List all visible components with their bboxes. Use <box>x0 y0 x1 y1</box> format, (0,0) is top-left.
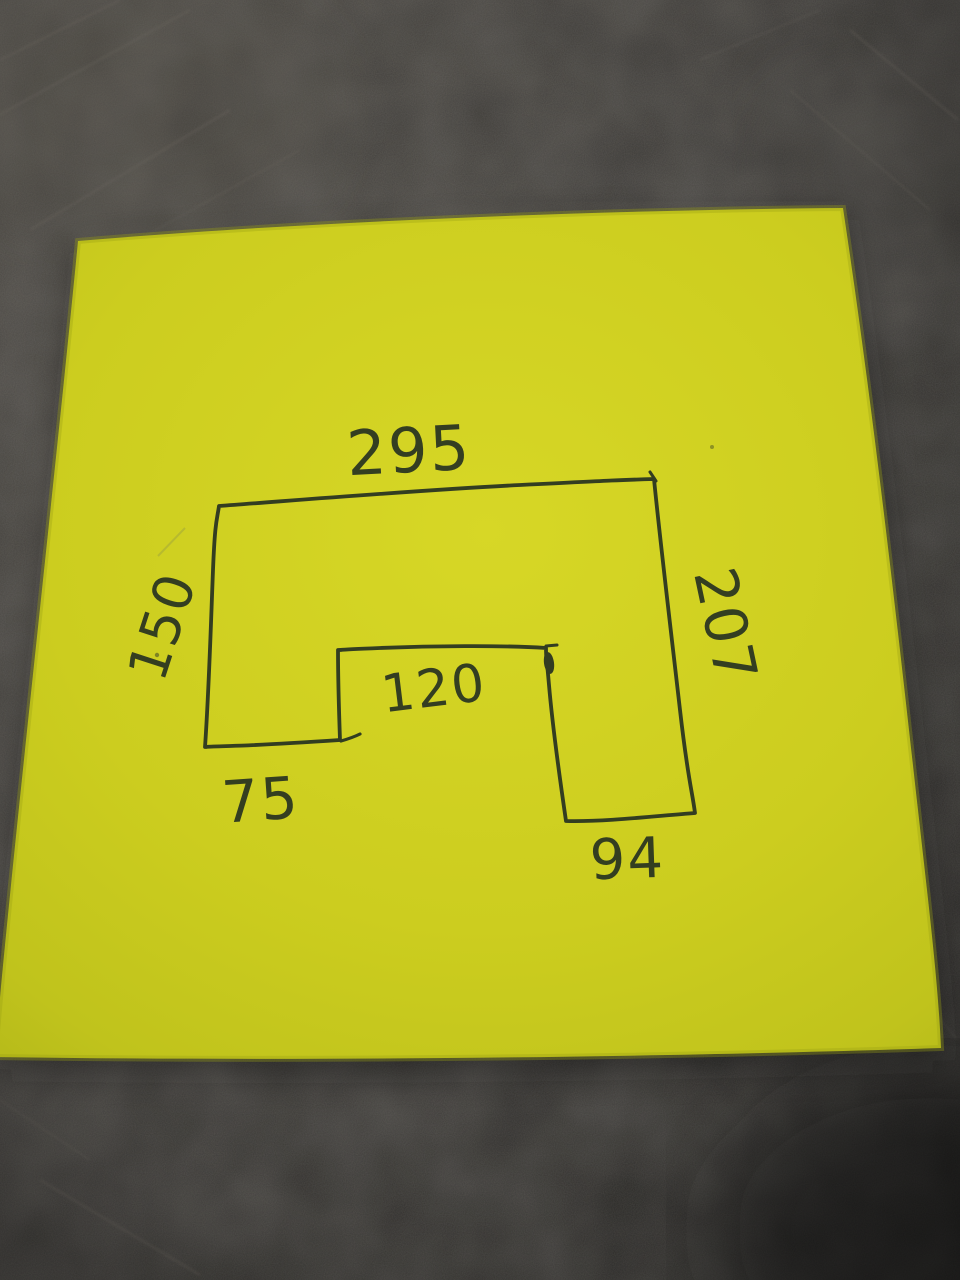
dimension-label-bottom-right-width: 94 <box>589 826 666 894</box>
dimension-label-top-width: 295 <box>345 411 473 490</box>
scene: 295 207 150 120 75 94 <box>0 0 960 1280</box>
photo: 295 207 150 120 75 94 <box>0 0 960 1280</box>
corner-overshoot-inner-right <box>546 645 557 646</box>
dimension-label-bottom-left-width: 75 <box>219 763 301 836</box>
paper-speck <box>710 445 714 449</box>
dimension-label-inner-notch-width: 120 <box>378 653 490 725</box>
